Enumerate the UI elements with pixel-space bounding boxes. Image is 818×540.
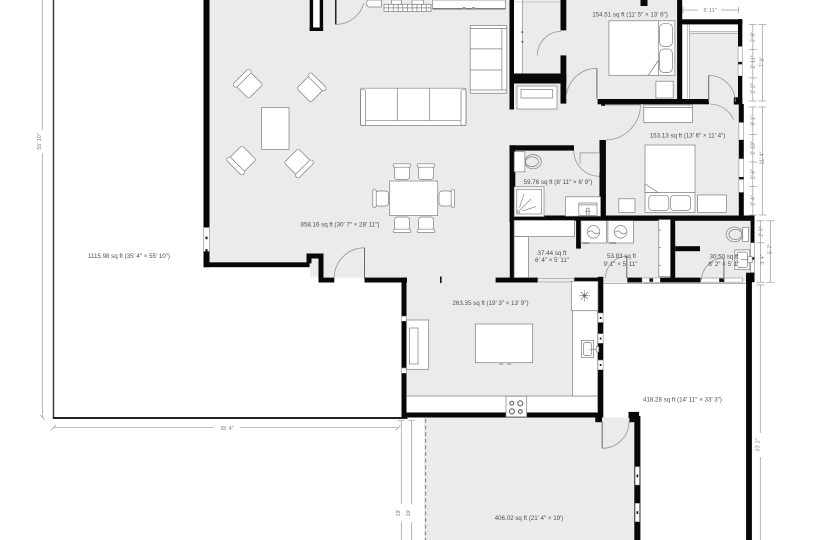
svg-text:37.44 sq ft: 37.44 sq ft: [538, 250, 567, 257]
svg-text:2′ 11″: 2′ 11″: [751, 55, 757, 68]
svg-text:6′ 4″ × 5′ 11″: 6′ 4″ × 5′ 11″: [535, 257, 570, 264]
svg-text:153.13 sq ft (13′ 6″ × 11′ 4″): 153.13 sq ft (13′ 6″ × 11′ 4″): [650, 133, 726, 140]
svg-text:7′ 9″: 7′ 9″: [760, 57, 766, 68]
svg-text:5′ 11″: 5′ 11″: [703, 8, 716, 14]
svg-text:2′ 9″: 2′ 9″: [751, 32, 757, 43]
svg-text:2′ 3″: 2′ 3″: [758, 226, 764, 237]
svg-text:19′: 19′: [396, 509, 402, 516]
svg-text:263.35 sq ft (19′ 3″ × 13′ 9″): 263.35 sq ft (19′ 3″ × 13′ 9″): [452, 300, 528, 307]
svg-text:5′ 7″: 5′ 7″: [767, 244, 773, 255]
svg-text:19′: 19′: [406, 509, 412, 516]
svg-text:2′ 2″: 2′ 2″: [751, 83, 757, 94]
svg-text:2′ 10″: 2′ 10″: [751, 141, 757, 155]
svg-text:55′ 10″: 55′ 10″: [37, 133, 43, 150]
svg-text:9′ 1″ × 5′ 11″: 9′ 1″ × 5′ 11″: [604, 261, 639, 268]
svg-text:858.16 sq ft (30′ 7″ × 28′ 11″: 858.16 sq ft (30′ 7″ × 28′ 11″): [301, 222, 380, 229]
svg-text:1115.98 sq ft (35′ 4″ × 55′ 10: 1115.98 sq ft (35′ 4″ × 55′ 10″): [88, 253, 170, 260]
svg-text:53.83 sq ft: 53.83 sq ft: [607, 253, 636, 260]
svg-text:154.51 sq ft (11′ 5″ × 13′ 6″): 154.51 sq ft (11′ 5″ × 13′ 6″): [592, 12, 668, 19]
svg-text:33′ 2″: 33′ 2″: [755, 438, 761, 452]
svg-text:11′ 4″: 11′ 4″: [760, 151, 766, 164]
svg-text:3′ 4″: 3′ 4″: [760, 254, 766, 265]
svg-text:59.76 sq ft (8′ 11″ × 6′ 9″): 59.76 sq ft (8′ 11″ × 6′ 9″): [524, 179, 593, 186]
svg-text:406.02 sq ft (21′ 4″ × 19′): 406.02 sq ft (21′ 4″ × 19′): [495, 515, 564, 522]
svg-text:3′ 1″: 3′ 1″: [751, 115, 757, 126]
svg-text:35′ 4″: 35′ 4″: [220, 426, 234, 432]
svg-text:418.28 sq ft (14′ 11″ × 33′ 3″: 418.28 sq ft (14′ 11″ × 33′ 3″): [643, 397, 722, 404]
svg-text:2′ 6″: 2′ 6″: [751, 169, 757, 180]
svg-text:8′ 2″ × 5′ 1″: 8′ 2″ × 5′ 1″: [709, 261, 741, 268]
svg-text:30.50 sq ft: 30.50 sq ft: [710, 254, 739, 261]
svg-text:2′ 4″: 2′ 4″: [751, 195, 757, 206]
